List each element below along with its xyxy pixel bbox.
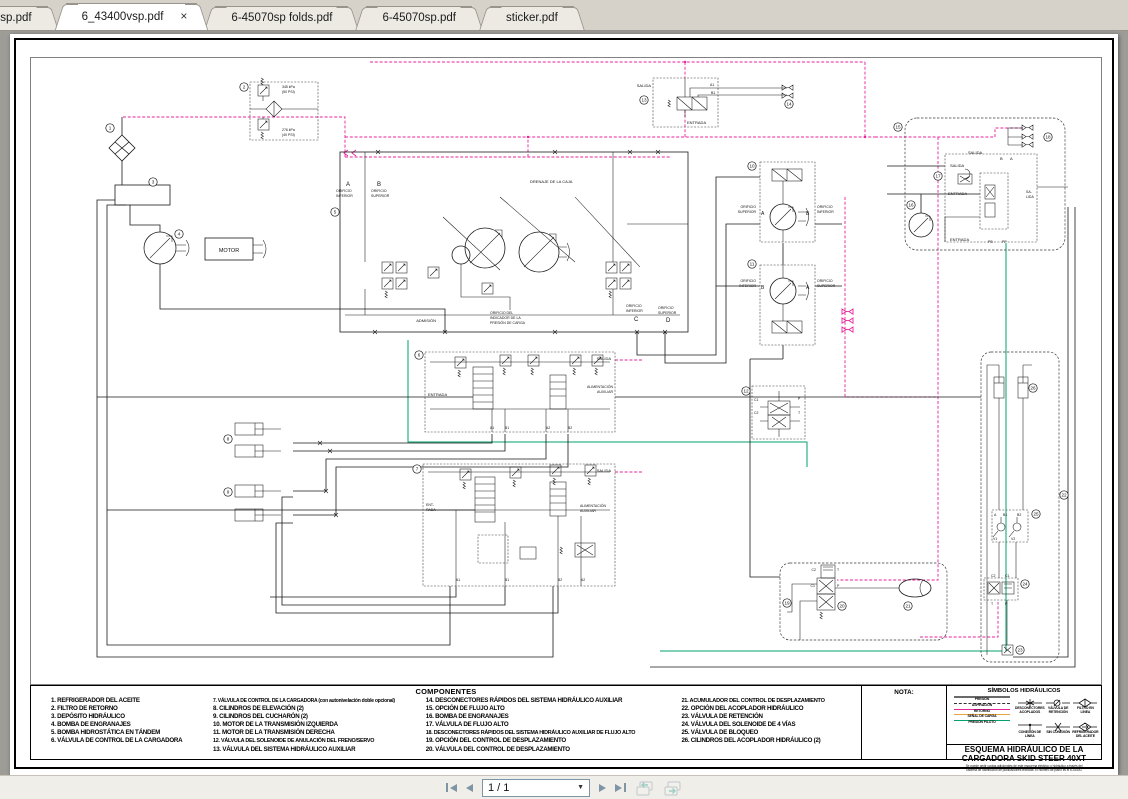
ride-control-option-block: C2 T C1 P [780, 563, 947, 640]
title-block: ESQUEMA HIDRÁULICO DE LA CARGADORA SKID … [947, 744, 1101, 771]
svg-text:23: 23 [1017, 648, 1023, 653]
page-number-dropdown[interactable]: 1 / 1 ▼ [482, 779, 590, 797]
svg-text:SA-: SA- [1026, 190, 1033, 194]
svg-text:C1: C1 [1005, 574, 1010, 578]
legend-line-label: PRESIÓN [952, 698, 1012, 702]
component-marker-16: 16 [907, 201, 915, 209]
hydrostatic-pump-block: A ORIFICIO INFERIOR B ORIFICIO SUPERIOR … [336, 150, 688, 334]
symbol-grid: DESCONECTORES ACOPLADOS VÁLVULA DE RETEN… [1012, 696, 1099, 744]
svg-text:6: 6 [418, 353, 421, 358]
bottom-toolbar: 1 / 1 ▼ [0, 775, 1128, 799]
svg-text:(40 PSI): (40 PSI) [282, 133, 295, 137]
tab-6-45070sp[interactable]: 6-45070sp.pdf [366, 6, 472, 30]
svg-text:B1: B1 [505, 426, 509, 430]
legend-line-label: ASPIRACIÓN [952, 704, 1012, 708]
component-marker-13: 13 [640, 96, 648, 104]
svg-text:ALIMENTACIÓN: ALIMENTACIÓN [580, 503, 606, 508]
next-view-button[interactable] [663, 780, 682, 796]
component-marker-8: 8 [224, 435, 232, 443]
component-marker-10: 10 [748, 162, 756, 170]
lift-cylinders [235, 423, 281, 457]
component-item: 16. BOMBA DE ENGRANAJES [426, 713, 682, 721]
svg-text:SUPERIOR: SUPERIOR [738, 210, 757, 214]
svg-text:A1: A1 [710, 83, 714, 87]
symbol-cell: REFRIGERADOR DEL ACEITE [1072, 720, 1099, 744]
svg-text:ORIFICIO DEL: ORIFICIO DEL [490, 311, 513, 315]
component-marker-15: 15 [894, 123, 902, 131]
component-item: 22. OPCIÓN DEL ACOPLADOR HIDRÁULICO [681, 705, 861, 713]
drive-motor-left: ORIFICIO SUPERIOR A B ORIFICIO INFERIOR [738, 162, 834, 242]
svg-text:A1: A1 [490, 426, 494, 430]
line-type-legend: PRESIÓN ASPIRACIÓN RETORNO SEÑAL DE CARG… [952, 696, 1012, 744]
svg-text:SALIDA: SALIDA [597, 356, 612, 361]
svg-text:10: 10 [749, 164, 755, 169]
svg-text:T: T [991, 602, 994, 606]
component-marker-20: 20 [838, 602, 846, 610]
svg-text:C2: C2 [754, 411, 759, 415]
svg-text:A2: A2 [581, 578, 585, 582]
svg-text:12: 12 [743, 389, 749, 394]
brake-servo-solenoid-valve: C1 C2 P T [752, 386, 805, 439]
svg-text:14: 14 [786, 102, 792, 107]
loader-control-valve: SALIDA ENTRADA ALIMENTACIÓN AUXILIAR A1 … [425, 352, 615, 432]
last-page-button[interactable] [615, 783, 626, 792]
svg-text:19: 19 [784, 601, 790, 606]
component-item: 20. VÁLVULA DEL CONTROL DE DESPLAZAMIENT… [426, 746, 682, 754]
legend-line-label: PRESIÓN PILOTO [952, 721, 1012, 725]
svg-text:A2: A2 [546, 426, 550, 430]
svg-text:ORIFICIO: ORIFICIO [817, 205, 833, 209]
tab-0rsp[interactable]: 0rsp.pdf [0, 6, 48, 30]
symbol-cell: CONEXIÓN DE LÍNEA [1015, 720, 1045, 744]
svg-text:P: P [798, 397, 801, 401]
svg-text:B2: B2 [568, 426, 572, 430]
svg-text:AUXILIAR: AUXILIAR [597, 390, 613, 394]
svg-text:3: 3 [152, 180, 155, 185]
next-page-button[interactable] [599, 784, 606, 792]
svg-text:15: 15 [895, 125, 901, 130]
svg-text:B2: B2 [558, 578, 562, 582]
svg-text:4: 4 [178, 232, 181, 237]
svg-text:ORIFICIO: ORIFICIO [817, 279, 833, 283]
component-item: 15. OPCIÓN DE FLUJO ALTO [426, 705, 682, 713]
svg-text:24: 24 [1022, 582, 1028, 587]
svg-text:T: T [798, 411, 801, 415]
first-page-button[interactable] [446, 783, 457, 792]
svg-text:C: C [634, 317, 639, 323]
svg-text:INFERIOR: INFERIOR [817, 210, 834, 214]
svg-text:DRENAJE DE LA CAJA: DRENAJE DE LA CAJA [530, 179, 573, 184]
motor-box: MOTOR [205, 238, 266, 260]
pdf-page: 345 kPa (50 PSI) 276 kPa (40 PSI) MOTOR … [10, 34, 1118, 775]
drawing-title-line2: CARGADORA SKID STEER 40XT [947, 755, 1101, 764]
svg-text:AUXILIAR: AUXILIAR [580, 509, 596, 513]
pdf-viewer-window: { "tabs": [ {"label": "0rsp.pdf"}, {"lab… [0, 0, 1128, 799]
symbol-cell: VÁLVULA DE RETENCIÓN [1045, 696, 1072, 720]
svg-text:A: A [761, 211, 765, 217]
component-marker-9: 9 [224, 488, 232, 496]
svg-text:ENTRADA: ENTRADA [948, 191, 967, 196]
svg-text:INFERIOR: INFERIOR [336, 194, 353, 198]
pressure-signal-lines [123, 61, 1023, 637]
svg-text:D: D [666, 318, 671, 324]
svg-text:ALIMENTACIÓN: ALIMENTACIÓN [587, 384, 613, 389]
component-item: 19. OPCIÓN DEL CONTROL DE DESPLAZAMIENTO [426, 737, 682, 745]
svg-text:SALIDA: SALIDA [597, 468, 612, 473]
svg-text:LIDA: LIDA [1026, 195, 1034, 199]
component-item: 25. VÁLVULA DE BLOQUEO [681, 729, 861, 737]
component-marker-14: 14 [785, 100, 793, 108]
pilot-pressure-lines [408, 243, 1006, 651]
svg-text:276 kPa: 276 kPa [282, 128, 295, 132]
component-item: 3. DEPÓSITO HIDRÁULICO [51, 713, 213, 721]
component-item: 6. VÁLVULA DE CONTROL DE LA CARGADORA [51, 737, 213, 745]
svg-text:B1: B1 [505, 578, 509, 582]
svg-text:INDICADOR DE LA: INDICADOR DE LA [490, 316, 521, 320]
components-title: COMPONENTES [31, 687, 861, 696]
return-filter-relief-block: 345 kPa (50 PSI) 276 kPa (40 PSI) [250, 78, 318, 140]
svg-text:ORIFICIO: ORIFICIO [658, 306, 674, 310]
component-item: 21. ACUMULADOR DEL CONTROL DE DESPLAZAMI… [681, 697, 861, 705]
component-marker-4: 4 [175, 230, 183, 238]
schematic-border [31, 58, 1102, 685]
hydraulic-schematic: 345 kPa (50 PSI) 276 kPa (40 PSI) MOTOR … [30, 57, 1102, 685]
svg-text:ORIFICIO: ORIFICIO [626, 304, 642, 308]
svg-text:B: B [1000, 156, 1003, 161]
svg-text:SUPERIOR: SUPERIOR [658, 311, 677, 315]
svg-text:A: A [1010, 156, 1013, 161]
svg-text:ORIFICIO: ORIFICIO [336, 189, 352, 193]
svg-text:PB: PB [988, 240, 993, 244]
svg-text:ENT-: ENT- [426, 503, 435, 507]
svg-text:18: 18 [1045, 135, 1051, 140]
tab-label: 6-45070sp folds.pdf [231, 12, 332, 24]
hydraulic-reservoir [115, 185, 170, 205]
svg-text:INFERIOR: INFERIOR [739, 284, 756, 288]
component-item: 11. MOTOR DE LA TRANSMISIÓN DERECHA [213, 729, 426, 737]
svg-text:ENTRADA: ENTRADA [428, 392, 447, 397]
svg-text:B1: B1 [711, 91, 715, 95]
components-column-3: 14. DESCONECTORES RÁPIDOS DEL SISTEMA HI… [426, 697, 682, 754]
component-marker-22: 22 [1060, 491, 1068, 499]
component-marker-19: 19 [783, 599, 791, 607]
component-marker-3: 3 [149, 178, 157, 186]
svg-text:9: 9 [227, 490, 230, 495]
component-item: 12. VÁLVULA DEL SOLENOIDE DE ANULACIÓN D… [213, 737, 426, 745]
svg-text:ORIFICIO: ORIFICIO [740, 205, 756, 209]
component-marker-24: 24 [1021, 580, 1029, 588]
component-item: 2. FILTRO DE RETORNO [51, 705, 213, 713]
svg-text:PRESIÓN DE CARGA: PRESIÓN DE CARGA [490, 320, 526, 325]
tab-label: 6-45070sp.pdf [382, 12, 456, 24]
svg-text:MOTOR: MOTOR [219, 248, 239, 254]
component-item: 24. VÁLVULA DEL SOLENOIDE DE 4 VÍAS [681, 721, 861, 729]
svg-text:B: B [806, 211, 810, 217]
drive-motor-right: ORIFICIO INFERIOR B A ORIFICIO SUPERIOR [739, 265, 835, 345]
component-item: 17. VÁLVULA DE FLUJO ALTO [426, 721, 682, 729]
svg-text:345 kPa: 345 kPa [282, 85, 295, 89]
component-marker-11: 11 [748, 260, 756, 268]
tab-6-45070sp-folds[interactable]: 6-45070sp folds.pdf [215, 6, 348, 30]
component-marker-6: 6 [415, 351, 423, 359]
svg-text:B1: B1 [1003, 513, 1007, 517]
component-marker-25: 25 [1032, 510, 1040, 518]
svg-text:V1: V1 [993, 537, 997, 541]
svg-text:SUPERIOR: SUPERIOR [371, 194, 390, 198]
components-list: COMPONENTES 1. REFRIGERADOR DEL ACEITE 2… [31, 686, 861, 759]
previous-view-button[interactable] [635, 780, 654, 796]
bucket-cylinders [235, 485, 281, 521]
svg-text:21: 21 [905, 604, 911, 609]
svg-text:17: 17 [935, 174, 941, 179]
viewer-canvas: 345 kPa (50 PSI) 276 kPa (40 PSI) MOTOR … [0, 31, 1128, 775]
svg-text:22: 22 [1061, 493, 1067, 498]
oil-cooler-symbol [109, 135, 135, 161]
svg-text:7: 7 [416, 467, 419, 472]
svg-text:8: 8 [227, 437, 230, 442]
component-item: 14. DESCONECTORES RÁPIDOS DEL SISTEMA HI… [426, 697, 682, 705]
component-marker-21: 21 [904, 602, 912, 610]
component-marker-7: 7 [413, 465, 421, 473]
tab-sticker[interactable]: sticker.pdf [490, 6, 574, 30]
component-item: 26. CILINDROS DEL ACOPLADOR HIDRÁULICO (… [681, 737, 861, 745]
svg-text:ENTRADA: ENTRADA [687, 120, 706, 125]
aux-hydraulic-valve: SALIDA A1 B1 ENTRADA [637, 78, 793, 127]
tab-label: 0rsp.pdf [0, 12, 32, 24]
components-column-2: 7. VÁLVULA DE CONTROL DE LA CARGADORA (c… [213, 697, 426, 754]
svg-text:20: 20 [839, 604, 845, 609]
svg-text:A: A [346, 182, 350, 188]
svg-text:16: 16 [908, 203, 914, 208]
svg-text:C2: C2 [991, 574, 996, 578]
tab-label: 6_43400vsp.pdf [82, 11, 164, 23]
svg-text:SALIDA: SALIDA [968, 150, 983, 155]
title-fineprint-2: Sistema de distribución de publicaciones… [947, 769, 1101, 773]
component-marker-5: 5 [331, 208, 339, 216]
svg-text:C1: C1 [754, 398, 759, 402]
symbol-cell: FILTRO EN LÍNEA [1072, 696, 1099, 720]
svg-text:RADA: RADA [426, 508, 436, 512]
svg-text:SALIDA: SALIDA [950, 163, 965, 168]
component-marker-23: 23 [1016, 646, 1024, 654]
component-item: 5. BOMBA HIDROSTÁTICA EN TÁNDEM [51, 729, 213, 737]
chevron-down-icon: ▼ [577, 784, 584, 791]
symbols-box: SÍMBOLOS HIDRÁULICOS PRESIÓN ASPIRACIÓN … [946, 686, 1101, 759]
component-markers: 1 2 3 4 5 6 7 8 9 10 11 12 13 14 15 16 1… [106, 83, 1068, 654]
selfleveling-control-valve: SALIDA ENT- RADA ALIMENTACIÓN AUXILIAR A… [423, 464, 615, 586]
previous-page-button[interactable] [466, 784, 473, 792]
symbols-title: SÍMBOLOS HIDRÁULICOS [947, 686, 1101, 694]
svg-text:T: T [837, 568, 840, 572]
svg-text:ORIFICIO: ORIFICIO [740, 279, 756, 283]
svg-text:ENTRADA: ENTRADA [950, 237, 969, 242]
svg-text:26: 26 [1030, 386, 1036, 391]
svg-text:V2: V2 [1011, 537, 1015, 541]
components-column-1: 1. REFRIGERADOR DEL ACEITE 2. FILTRO DE … [51, 697, 213, 754]
svg-text:2: 2 [243, 85, 246, 90]
hydraulic-coupler-option-block: A B1 B2 V1 V2 C2 C1 T P [981, 352, 1059, 662]
legend-line-label: RETORNO [952, 710, 1012, 714]
component-item: 1. REFRIGERADOR DEL ACEITE [51, 697, 213, 705]
svg-text:SALIDA: SALIDA [637, 83, 652, 88]
svg-text:25: 25 [1033, 512, 1039, 517]
svg-text:C1: C1 [811, 584, 816, 588]
svg-text:1: 1 [109, 126, 112, 131]
svg-text:13: 13 [641, 98, 647, 103]
svg-text:INFERIOR: INFERIOR [626, 309, 643, 313]
component-marker-2: 2 [240, 83, 248, 91]
svg-text:ORIFICIO: ORIFICIO [371, 189, 387, 193]
svg-text:A: A [806, 285, 810, 291]
legend-line-label: SEÑAL DE CARGA [952, 715, 1012, 719]
tab-bar: 0rsp.pdf 6_43400vsp.pdf × 6-45070sp fold… [0, 0, 1128, 31]
tab-label: sticker.pdf [506, 12, 558, 24]
components-legend-strip: COMPONENTES 1. REFRIGERADOR DEL ACEITE 2… [30, 685, 1102, 760]
svg-text:B: B [377, 182, 381, 188]
component-marker-12: 12 [742, 387, 750, 395]
tab-6-43400vsp[interactable]: 6_43400vsp.pdf × [66, 3, 198, 30]
component-marker-1: 1 [106, 124, 114, 132]
close-icon[interactable]: × [180, 10, 187, 22]
component-item: 4. BOMBA DE ENGRANAJES [51, 721, 213, 729]
symbol-cell: DESCONECTORES ACOPLADOS [1015, 696, 1045, 720]
component-marker-18: 18 [1044, 133, 1052, 141]
svg-text:B2: B2 [1017, 513, 1021, 517]
component-marker-17: 17 [934, 172, 942, 180]
components-column-4: 21. ACUMULADOR DEL CONTROL DE DESPLAZAMI… [681, 697, 861, 754]
svg-text:A: A [994, 513, 997, 517]
page-indicator: 1 / 1 [488, 782, 509, 794]
svg-text:SUPERIOR: SUPERIOR [817, 284, 836, 288]
svg-text:(50 PSI): (50 PSI) [282, 90, 295, 94]
component-item: 13. VÁLVULA DEL SISTEMA HIDRÁULICO AUXIL… [213, 746, 426, 754]
svg-text:PP: PP [1002, 240, 1007, 244]
svg-text:A1: A1 [456, 578, 460, 582]
component-item: 7. VÁLVULA DE CONTROL DE LA CARGADORA (c… [213, 697, 426, 705]
svg-text:P: P [1005, 602, 1008, 606]
svg-text:P: P [837, 584, 840, 588]
component-marker-26: 26 [1029, 384, 1037, 392]
svg-text:5: 5 [334, 210, 337, 215]
svg-text:ADMISIÓN: ADMISIÓN [416, 318, 436, 323]
symbol-cell: SIN CONEXIÓN [1045, 720, 1072, 744]
svg-text:11: 11 [750, 262, 755, 267]
svg-text:B: B [761, 285, 765, 291]
component-item: 8. CILINDROS DE ELEVACIÓN (2) [213, 705, 426, 713]
nota-box: NOTA: [861, 686, 946, 759]
svg-text:C2: C2 [812, 568, 817, 572]
main-lines [97, 117, 1075, 667]
